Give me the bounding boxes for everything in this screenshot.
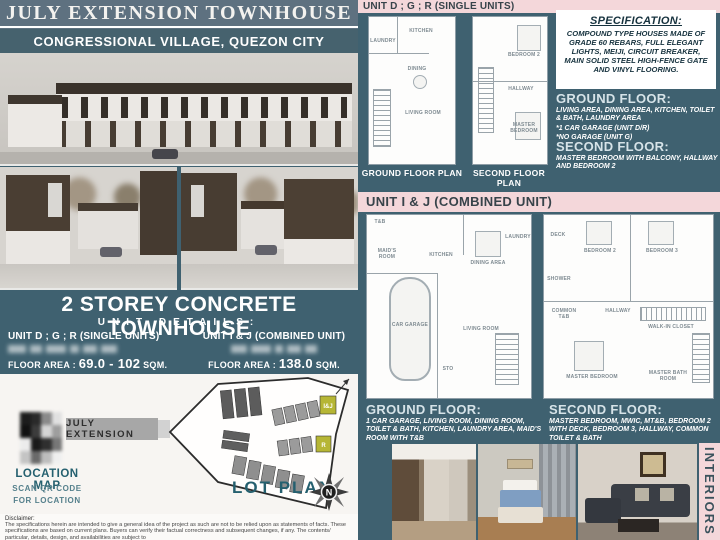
unit-details-subheading: UNIT DETAILS: bbox=[0, 317, 358, 328]
bed-footboard bbox=[498, 507, 543, 522]
wall-art bbox=[507, 459, 532, 469]
room-label: WALK-IN CLOSET bbox=[644, 325, 698, 331]
aerial-ground bbox=[0, 152, 358, 164]
room-label: BEDROOM 2 bbox=[503, 53, 545, 59]
closet-shelving bbox=[640, 307, 706, 321]
room-label: LIVING ROOM bbox=[403, 111, 443, 117]
specification-title: SPECIFICATION: bbox=[562, 15, 710, 27]
specification-body: COMPOUND TYPE HOUSES MADE OF GRADE 60 RE… bbox=[562, 29, 710, 74]
single-second-floor-plan-card: BEDROOM 2 HALLWAY MASTER BEDROOM bbox=[472, 16, 548, 165]
combined-second-floor-description: SECOND FLOOR: MASTER BEDROOM, MWIC, MT&B… bbox=[549, 402, 717, 443]
stairs bbox=[495, 333, 519, 385]
single-ground-floor-description: GROUND FLOOR: LIVING AREA, DINING AREA, … bbox=[556, 91, 718, 143]
interiors-label: INTERIORS bbox=[702, 447, 717, 536]
room-label: MASTER BATH ROOM bbox=[644, 371, 692, 382]
chaise bbox=[585, 498, 621, 523]
combined-second-floor-plan-card: DECK BEDROOM 2 BEDROOM 3 SHOWER COMMON T… bbox=[543, 214, 714, 399]
ground-floor-line2: *1 CAR GARAGE (UNIT D/R) bbox=[556, 125, 718, 133]
townhouse-flyer: JULY EXTENSION TOWNHOUSE CONGRESSIONAL V… bbox=[0, 0, 720, 540]
specification-box: SPECIFICATION: COMPOUND TYPE HOUSES MADE… bbox=[556, 10, 716, 89]
second-floor-title: SECOND FLOOR: bbox=[556, 139, 718, 154]
street-car bbox=[100, 247, 122, 257]
room-label: DINING bbox=[397, 67, 437, 73]
house-window bbox=[48, 183, 62, 217]
street-render-left-image bbox=[0, 167, 177, 290]
sofa bbox=[611, 484, 690, 517]
master-bed bbox=[574, 341, 604, 371]
interior-photo-living-room bbox=[578, 444, 697, 540]
room-label: DINING AREA bbox=[465, 261, 511, 267]
ground-floor-plan-label: GROUND FLOOR PLAN bbox=[360, 168, 464, 178]
aerial-car bbox=[152, 149, 178, 159]
location-lot-panel: LOCATION MAP SCAN QR CODE FOR LOCATION J… bbox=[0, 374, 358, 514]
second-floor-line1: MASTER BEDROOM WITH BALCONY, HALLWAY AND… bbox=[556, 155, 718, 172]
stairs bbox=[373, 89, 391, 147]
room-label: MASTER BEDROOM bbox=[566, 375, 618, 381]
street-car bbox=[255, 245, 277, 255]
room-label: LIVING ROOM bbox=[457, 327, 505, 333]
aerial-windows bbox=[61, 97, 347, 118]
combined-unit-price-redacted bbox=[196, 345, 352, 353]
compass-rose: N bbox=[306, 472, 352, 512]
room-label: SHOWER bbox=[546, 277, 572, 283]
single-unit-title: UNIT D ; G ; R (SINGLE UNITS) bbox=[8, 331, 190, 342]
house-middle bbox=[78, 203, 138, 249]
combined-unit-floor-area: FLOOR AREA : 138.0 SQM. bbox=[196, 356, 352, 371]
room-label: T&B bbox=[369, 220, 391, 226]
street-ground bbox=[0, 264, 177, 288]
second-floor-title: SECOND FLOOR: bbox=[549, 402, 717, 417]
street-ground bbox=[181, 264, 358, 288]
unit-r-tag: R bbox=[321, 443, 326, 449]
combined-ground-floor-plan-card: T&B MAID'S ROOM KITCHEN DINING AREA LAUN… bbox=[366, 214, 532, 399]
street-render-right-image bbox=[181, 167, 358, 290]
title-banner: JULY EXTENSION TOWNHOUSE bbox=[0, 0, 358, 29]
single-unit-floor-area: FLOOR AREA : 69.0 - 102 SQM. bbox=[8, 356, 190, 371]
bed bbox=[648, 221, 674, 245]
sofa-pillow bbox=[660, 488, 674, 501]
aerial-building-row bbox=[56, 83, 352, 147]
room-label: BEDROOM 3 bbox=[640, 249, 684, 255]
lot-units-cluster-top bbox=[220, 387, 262, 419]
combined-unit-title: UNIT I & J (COMBINED UNIT) bbox=[196, 331, 352, 342]
unit-ij-tag: I&J bbox=[323, 404, 332, 410]
dining-table bbox=[413, 75, 427, 89]
single-unit-summary: UNIT D ; G ; R (SINGLE UNITS) FLOOR AREA… bbox=[8, 331, 190, 371]
room-label: DECK bbox=[546, 233, 570, 239]
room-label: LAUNDRY bbox=[505, 235, 531, 241]
single-ground-floor-plan-card: LAUNDRY KITCHEN DINING LIVING ROOM bbox=[368, 16, 456, 165]
road-label: JULY EXTENSION bbox=[66, 418, 158, 440]
dining-table bbox=[475, 231, 501, 257]
combined-unit-summary: UNIT I & J (COMBINED UNIT) FLOOR AREA : … bbox=[196, 331, 352, 371]
room-label: KITCHEN bbox=[401, 29, 441, 35]
compass-north-label: N bbox=[326, 488, 333, 498]
single-unit-price-redacted bbox=[8, 345, 190, 353]
car-outline bbox=[389, 277, 431, 381]
room-label: HALLWAY bbox=[600, 309, 636, 315]
second-floor-plan-label: SECOND FLOOR PLAN bbox=[462, 168, 556, 188]
combined-ground-floor-description: GROUND FLOOR: 1 CAR GARAGE, LIVING ROOM,… bbox=[366, 402, 546, 443]
page-title: JULY EXTENSION TOWNHOUSE bbox=[0, 2, 358, 28]
coffee-table bbox=[618, 519, 658, 532]
curtains bbox=[539, 444, 576, 517]
house-window bbox=[191, 185, 204, 217]
ground-floor-title: GROUND FLOOR: bbox=[366, 402, 546, 417]
qr-code bbox=[20, 412, 62, 464]
room-label: STO bbox=[439, 367, 457, 373]
page-subtitle: CONGRESSIONAL VILLAGE, QUEZON CITY bbox=[0, 29, 358, 53]
aerial-upper-floor bbox=[56, 94, 352, 121]
ground-floor-body: 1 CAR GARAGE, LIVING ROOM, DINING ROOM, … bbox=[366, 418, 546, 443]
scan-qr-line2: FOR LOCATION bbox=[2, 496, 92, 505]
house-dark-right bbox=[140, 171, 177, 255]
unit-ij-header-strip: UNIT I & J (COMBINED UNIT) bbox=[358, 192, 720, 212]
second-floor-body: MASTER BEDROOM, MWIC, MT&B, BEDROOM 2 WI… bbox=[549, 418, 717, 443]
room-label: HALLWAY bbox=[501, 87, 541, 93]
room-label: CAR GARAGE bbox=[389, 323, 431, 329]
room-label: MAID'S ROOM bbox=[369, 249, 405, 260]
aerial-render-image bbox=[0, 53, 358, 166]
ground-floor-line1: LIVING AREA, DINING AREA, KITCHEN, TOILE… bbox=[556, 107, 718, 124]
bed bbox=[586, 221, 612, 245]
interior-photo-kitchen bbox=[392, 444, 476, 540]
disclaimer: Disclaimer: The specifications herein ar… bbox=[0, 514, 358, 540]
aerial-roof bbox=[56, 83, 352, 94]
ground-floor-title: GROUND FLOOR: bbox=[556, 91, 718, 106]
wall-art-frame bbox=[640, 452, 666, 477]
lot-north-arrowhead bbox=[343, 379, 349, 385]
scan-qr-line1: SCAN QR CODE bbox=[2, 484, 92, 493]
house-dark-left bbox=[181, 173, 237, 251]
sofa-pillow bbox=[635, 488, 649, 501]
interior-photo-bedroom bbox=[478, 444, 576, 540]
interiors-strip: INTERIORS bbox=[699, 443, 720, 540]
house-dark-right-upper bbox=[284, 179, 354, 239]
stairs bbox=[692, 333, 710, 383]
aerial-doors bbox=[60, 121, 348, 147]
bed bbox=[517, 25, 541, 51]
aerial-lower-floor bbox=[56, 121, 352, 147]
room-label: LAUNDRY bbox=[370, 39, 396, 45]
disclaimer-text: The specifications herein are intended t… bbox=[5, 522, 353, 540]
room-label: BEDROOM 2 bbox=[578, 249, 622, 255]
room-label: KITCHEN bbox=[423, 253, 459, 259]
unit-details-panel: 2 STOREY CONCRETE TOWNHOUSE UNIT DETAILS… bbox=[0, 290, 358, 374]
single-second-floor-description: SECOND FLOOR: MASTER BEDROOM WITH BALCON… bbox=[556, 139, 718, 172]
room-label: MASTER BEDROOM bbox=[501, 123, 547, 134]
stairs bbox=[478, 67, 494, 133]
room-label: COMMON T&B bbox=[546, 309, 582, 320]
aerial-building-left bbox=[8, 95, 62, 147]
